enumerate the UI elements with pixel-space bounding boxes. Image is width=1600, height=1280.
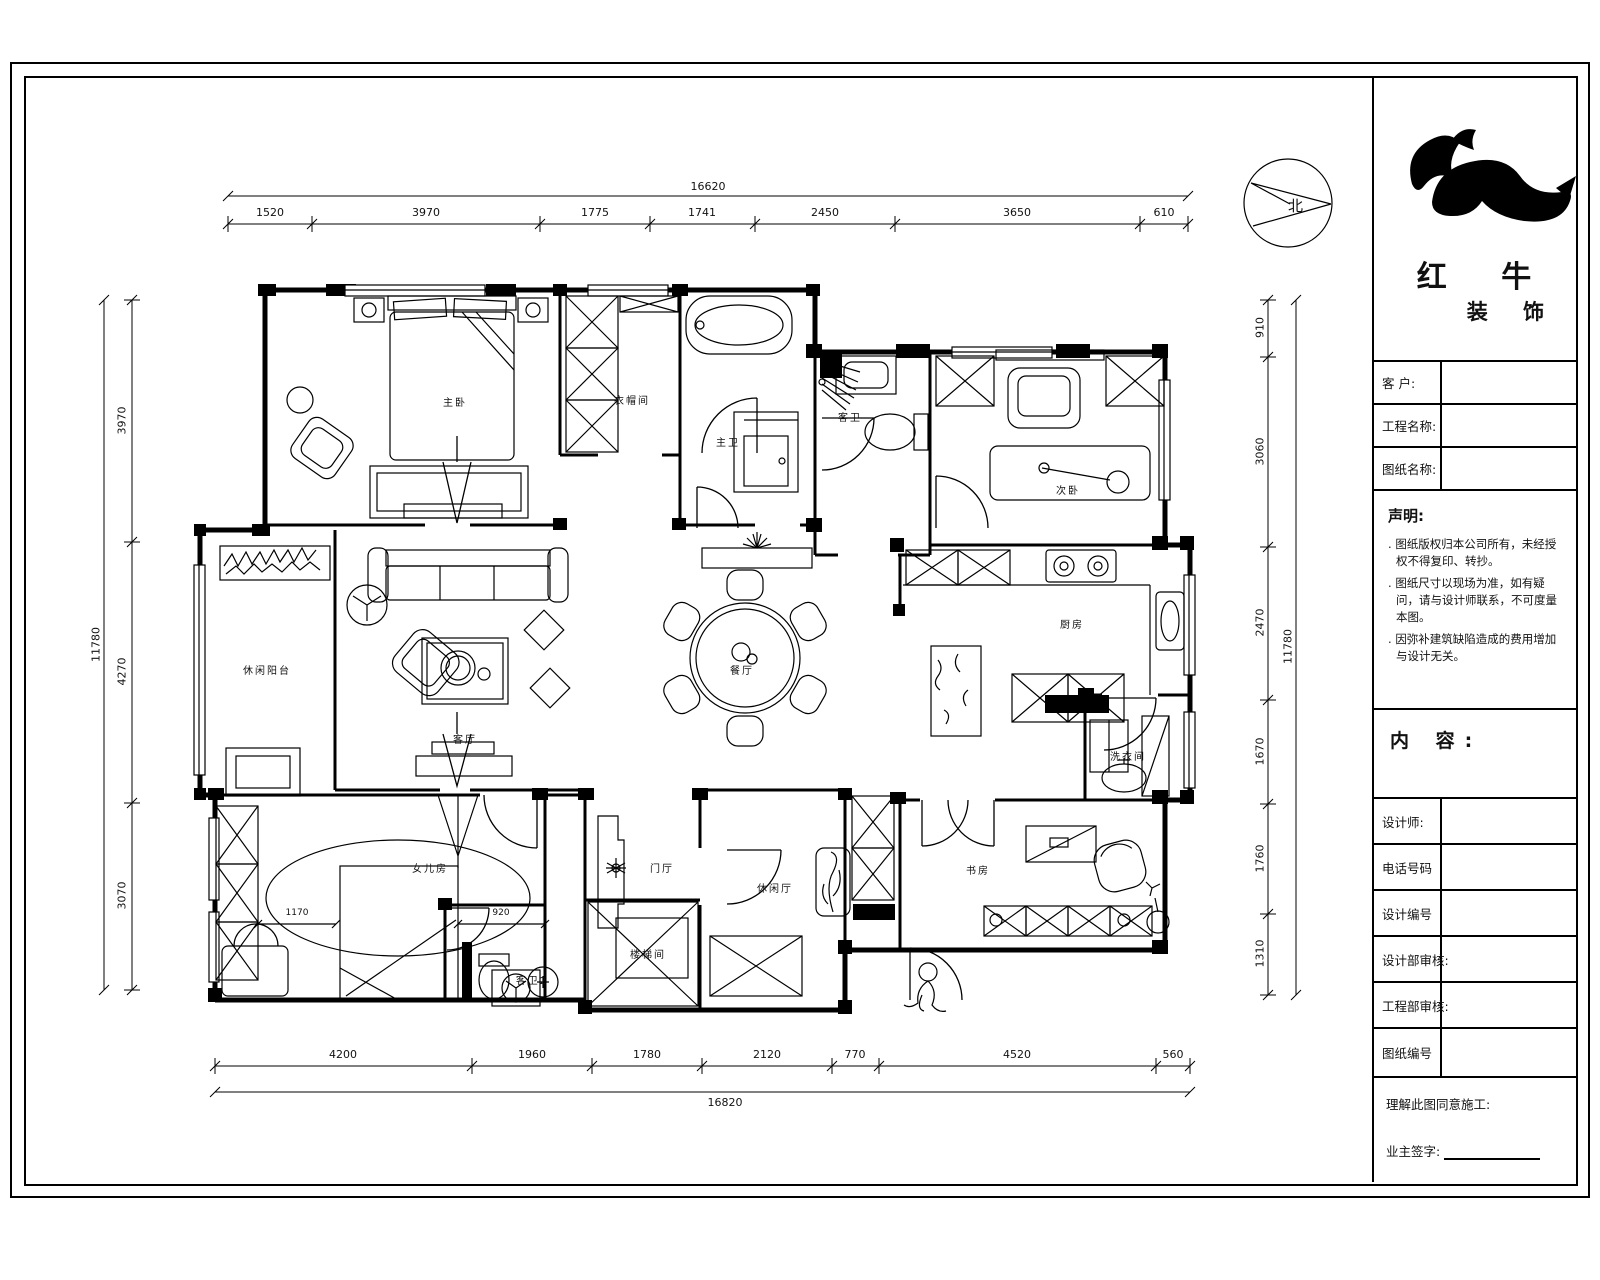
dim-right-segment-2: 2470	[1254, 591, 1267, 655]
room-label-second-bedroom: 次卧	[1023, 482, 1113, 497]
dim-top-segment-6: 610	[1132, 206, 1196, 219]
dim-left-segment-1: 4270	[116, 640, 129, 704]
brand-name: 红 牛	[1374, 252, 1574, 296]
project-name-value	[1442, 405, 1576, 446]
owner-signature-line	[1444, 1144, 1540, 1160]
dim-top-segment-1: 3970	[394, 206, 458, 219]
drawing-number-value	[1442, 1029, 1576, 1076]
dim-right-segment-4: 1760	[1254, 827, 1267, 891]
dining-set	[660, 570, 830, 746]
room-label-kitchen: 厨房	[1027, 616, 1117, 631]
brand-subname: 装 饰	[1467, 296, 1558, 326]
customer-value	[1442, 362, 1576, 403]
room-label-daughter-room: 女儿房	[385, 860, 475, 875]
design-review-value	[1442, 937, 1576, 981]
dim-right-total: 11780	[1282, 615, 1295, 679]
room-label-leisure-balcony: 休闲阳台	[222, 662, 312, 677]
dim-top-segment-4: 2450	[793, 206, 857, 219]
drawing-name-value	[1442, 448, 1576, 489]
wall-piers	[194, 284, 1194, 1014]
row-drawing-number: 图纸编号	[1374, 1027, 1576, 1076]
dim-bottom-segment-4: 770	[823, 1048, 887, 1061]
floor-plan-drawing	[0, 0, 1600, 1280]
dim-left-total: 11780	[90, 613, 103, 677]
windows	[194, 285, 1195, 982]
designer-label: 设计师:	[1374, 799, 1442, 843]
study-furniture	[904, 826, 1169, 1011]
dim-top-segment-0: 1520	[238, 206, 302, 219]
room-label-living-room: 客厅	[420, 731, 510, 746]
design-number-value	[1442, 891, 1576, 935]
room-label-entry-hall: 门厅	[617, 860, 707, 875]
dim-left-segment-0: 3970	[116, 389, 129, 453]
drawing-name-label: 图纸名称:	[1374, 448, 1442, 489]
row-engineering-review: 工程部审核:	[1374, 981, 1576, 1027]
room-label-master-bedroom: 主卧	[410, 394, 500, 409]
hall-console	[702, 532, 812, 568]
dim-bottom-segment-6: 560	[1141, 1048, 1205, 1061]
engineering-review-value	[1442, 983, 1576, 1027]
room-label-leisure-hall: 休闲厅	[730, 880, 820, 895]
row-design-number: 设计编号	[1374, 889, 1576, 935]
phone-value	[1442, 845, 1576, 889]
dim-left-segment-2: 3070	[116, 864, 129, 928]
room-label-master-bath: 主卫	[683, 434, 773, 449]
room-label-dining-room: 餐厅	[697, 662, 787, 677]
master-bath-fixtures	[686, 296, 798, 492]
designer-value	[1442, 799, 1576, 843]
owner-signature-label: 业主签字:	[1386, 1141, 1440, 1160]
room-label-stairwell: 楼梯间	[603, 946, 693, 961]
dim-top-segment-2: 1775	[563, 206, 627, 219]
dim-bottom-segment-3: 2120	[735, 1048, 799, 1061]
cloakroom-furniture	[566, 296, 678, 452]
drawing-sheet: 16620 1520 3970 1775 1741 2450 3650 610 …	[0, 0, 1600, 1280]
dim-top-segment-5: 3650	[985, 206, 1049, 219]
statement-item-3: 因弥补建筑缺陷造成的费用增加与设计无关。	[1388, 631, 1566, 664]
field-row-customer: 客 户:	[1374, 360, 1576, 403]
drawing-number-label: 图纸编号	[1374, 1029, 1442, 1076]
row-phone: 电话号码	[1374, 843, 1576, 889]
engineering-review-label: 工程部审核:	[1374, 983, 1442, 1027]
design-review-label: 设计部审核:	[1374, 937, 1442, 981]
room-label-study: 书房	[933, 862, 1023, 877]
project-name-label: 工程名称:	[1374, 405, 1442, 446]
dim-right-segment-5: 1310	[1254, 922, 1267, 986]
field-row-drawing: 图纸名称:	[1374, 446, 1576, 489]
leisure-hall-items	[710, 796, 894, 996]
interior-walls	[215, 290, 1190, 1010]
room-label-laundry: 洗衣间	[1083, 748, 1173, 763]
dim-top-segment-3: 1741	[670, 206, 734, 219]
kitchen-fittings	[903, 550, 1184, 736]
furniture	[216, 296, 1184, 1011]
statement-item-2: 图纸尺寸以现场为准，如有疑问，请与设计师联系，不可度量本图。	[1388, 575, 1566, 625]
statement-block: 声明: 图纸版权归本公司所有，未经授权不得复印、转抄。 图纸尺寸以现场为准，如有…	[1374, 489, 1576, 708]
dim-bottom-segment-0: 4200	[311, 1048, 375, 1061]
phone-label: 电话号码	[1374, 845, 1442, 889]
dim-inner-bed-right: 920	[479, 908, 523, 918]
dim-right-segment-1: 3060	[1254, 420, 1267, 484]
footer-block: 理解此图同意施工: 业主签字:	[1374, 1076, 1576, 1182]
room-label-guest-bath: 客卫	[805, 409, 895, 424]
dim-inner-bed-left: 1170	[275, 908, 319, 918]
dim-bottom-total: 16820	[693, 1096, 757, 1109]
footer-agreement-text: 理解此图同意施工:	[1386, 1094, 1576, 1113]
room-label-cloakroom: 衣帽间	[587, 392, 677, 407]
company-logo-block: 红 牛 装 饰	[1374, 76, 1574, 360]
content-block: 内 容:	[1374, 708, 1576, 797]
design-number-label: 设计编号	[1374, 891, 1442, 935]
customer-label: 客 户:	[1374, 362, 1442, 403]
statement-item-1: 图纸版权归本公司所有，未经授权不得复印、转抄。	[1388, 536, 1566, 569]
dim-right-segment-3: 1670	[1254, 720, 1267, 784]
dim-top-total: 16620	[676, 180, 740, 193]
field-row-project: 工程名称:	[1374, 403, 1576, 446]
row-design-review: 设计部审核:	[1374, 935, 1576, 981]
content-label: 内 容:	[1390, 730, 1482, 752]
dim-bottom-segment-1: 1960	[500, 1048, 564, 1061]
dim-bottom-segment-5: 4520	[985, 1048, 1049, 1061]
second-bedroom-furniture	[936, 350, 1164, 500]
dim-right-segment-0: 910	[1254, 296, 1267, 360]
north-label: 北	[1288, 195, 1303, 216]
room-label-guest-bath2: 客卫2	[487, 972, 577, 987]
row-designer: 设计师:	[1374, 797, 1576, 843]
title-block: 红 牛 装 饰 客 户: 工程名称: 图纸名称: 声明: 图纸版权归本公司所有，…	[1372, 76, 1574, 1182]
statement-heading: 声明:	[1388, 505, 1566, 526]
dim-bottom-segment-2: 1780	[615, 1048, 679, 1061]
